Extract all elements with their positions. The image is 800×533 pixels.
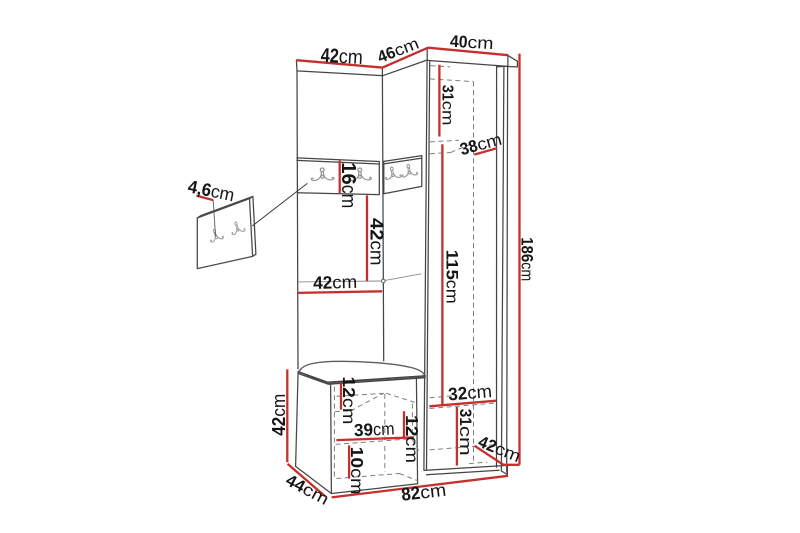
svg-text:32cm: 32cm [448,381,493,404]
svg-text:39cm: 39cm [354,418,395,440]
svg-text:12cm: 12cm [402,415,422,463]
svg-text:42cm: 42cm [313,272,358,293]
svg-text:42cm: 42cm [366,218,386,266]
svg-text:16cm: 16cm [337,162,359,208]
svg-text:42cm: 42cm [269,394,289,436]
svg-text:31cm: 31cm [439,85,456,126]
svg-text:40cm: 40cm [450,32,494,53]
svg-text:186cm: 186cm [518,237,536,281]
svg-text:31cm: 31cm [456,409,474,456]
svg-text:42cm: 42cm [320,45,363,69]
svg-text:10cm: 10cm [347,447,367,495]
svg-text:12cm: 12cm [339,376,359,424]
svg-text:115cm: 115cm [442,250,461,304]
